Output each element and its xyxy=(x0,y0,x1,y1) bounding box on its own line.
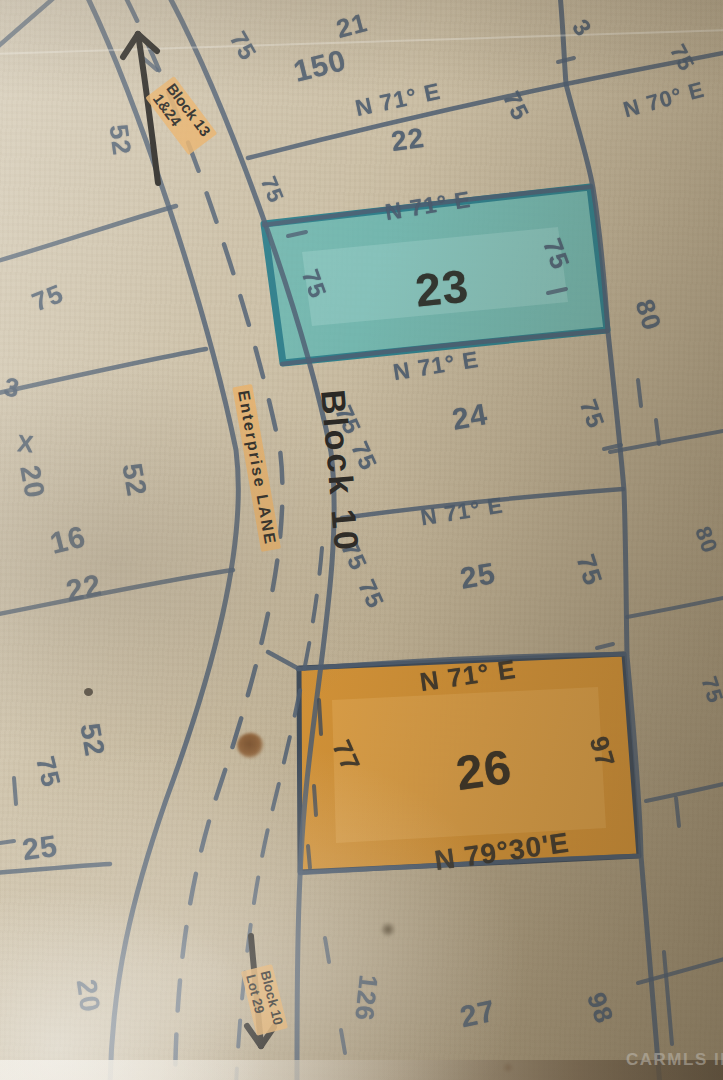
plat-map-photo: 21150N 71° E22757575375N 70° E80N 71° E7… xyxy=(0,0,723,1080)
road-left-edge xyxy=(86,0,238,1080)
lot-21-22-divider xyxy=(248,52,723,158)
lot-24-25-divider xyxy=(342,489,623,518)
road-enterprise-lane xyxy=(86,0,334,1080)
rear-lot-line xyxy=(560,0,660,1080)
lot-26-highlight xyxy=(299,654,639,872)
block10-lot-lines xyxy=(248,0,723,1080)
carmls-watermark: CARMLS INC xyxy=(626,1050,723,1070)
